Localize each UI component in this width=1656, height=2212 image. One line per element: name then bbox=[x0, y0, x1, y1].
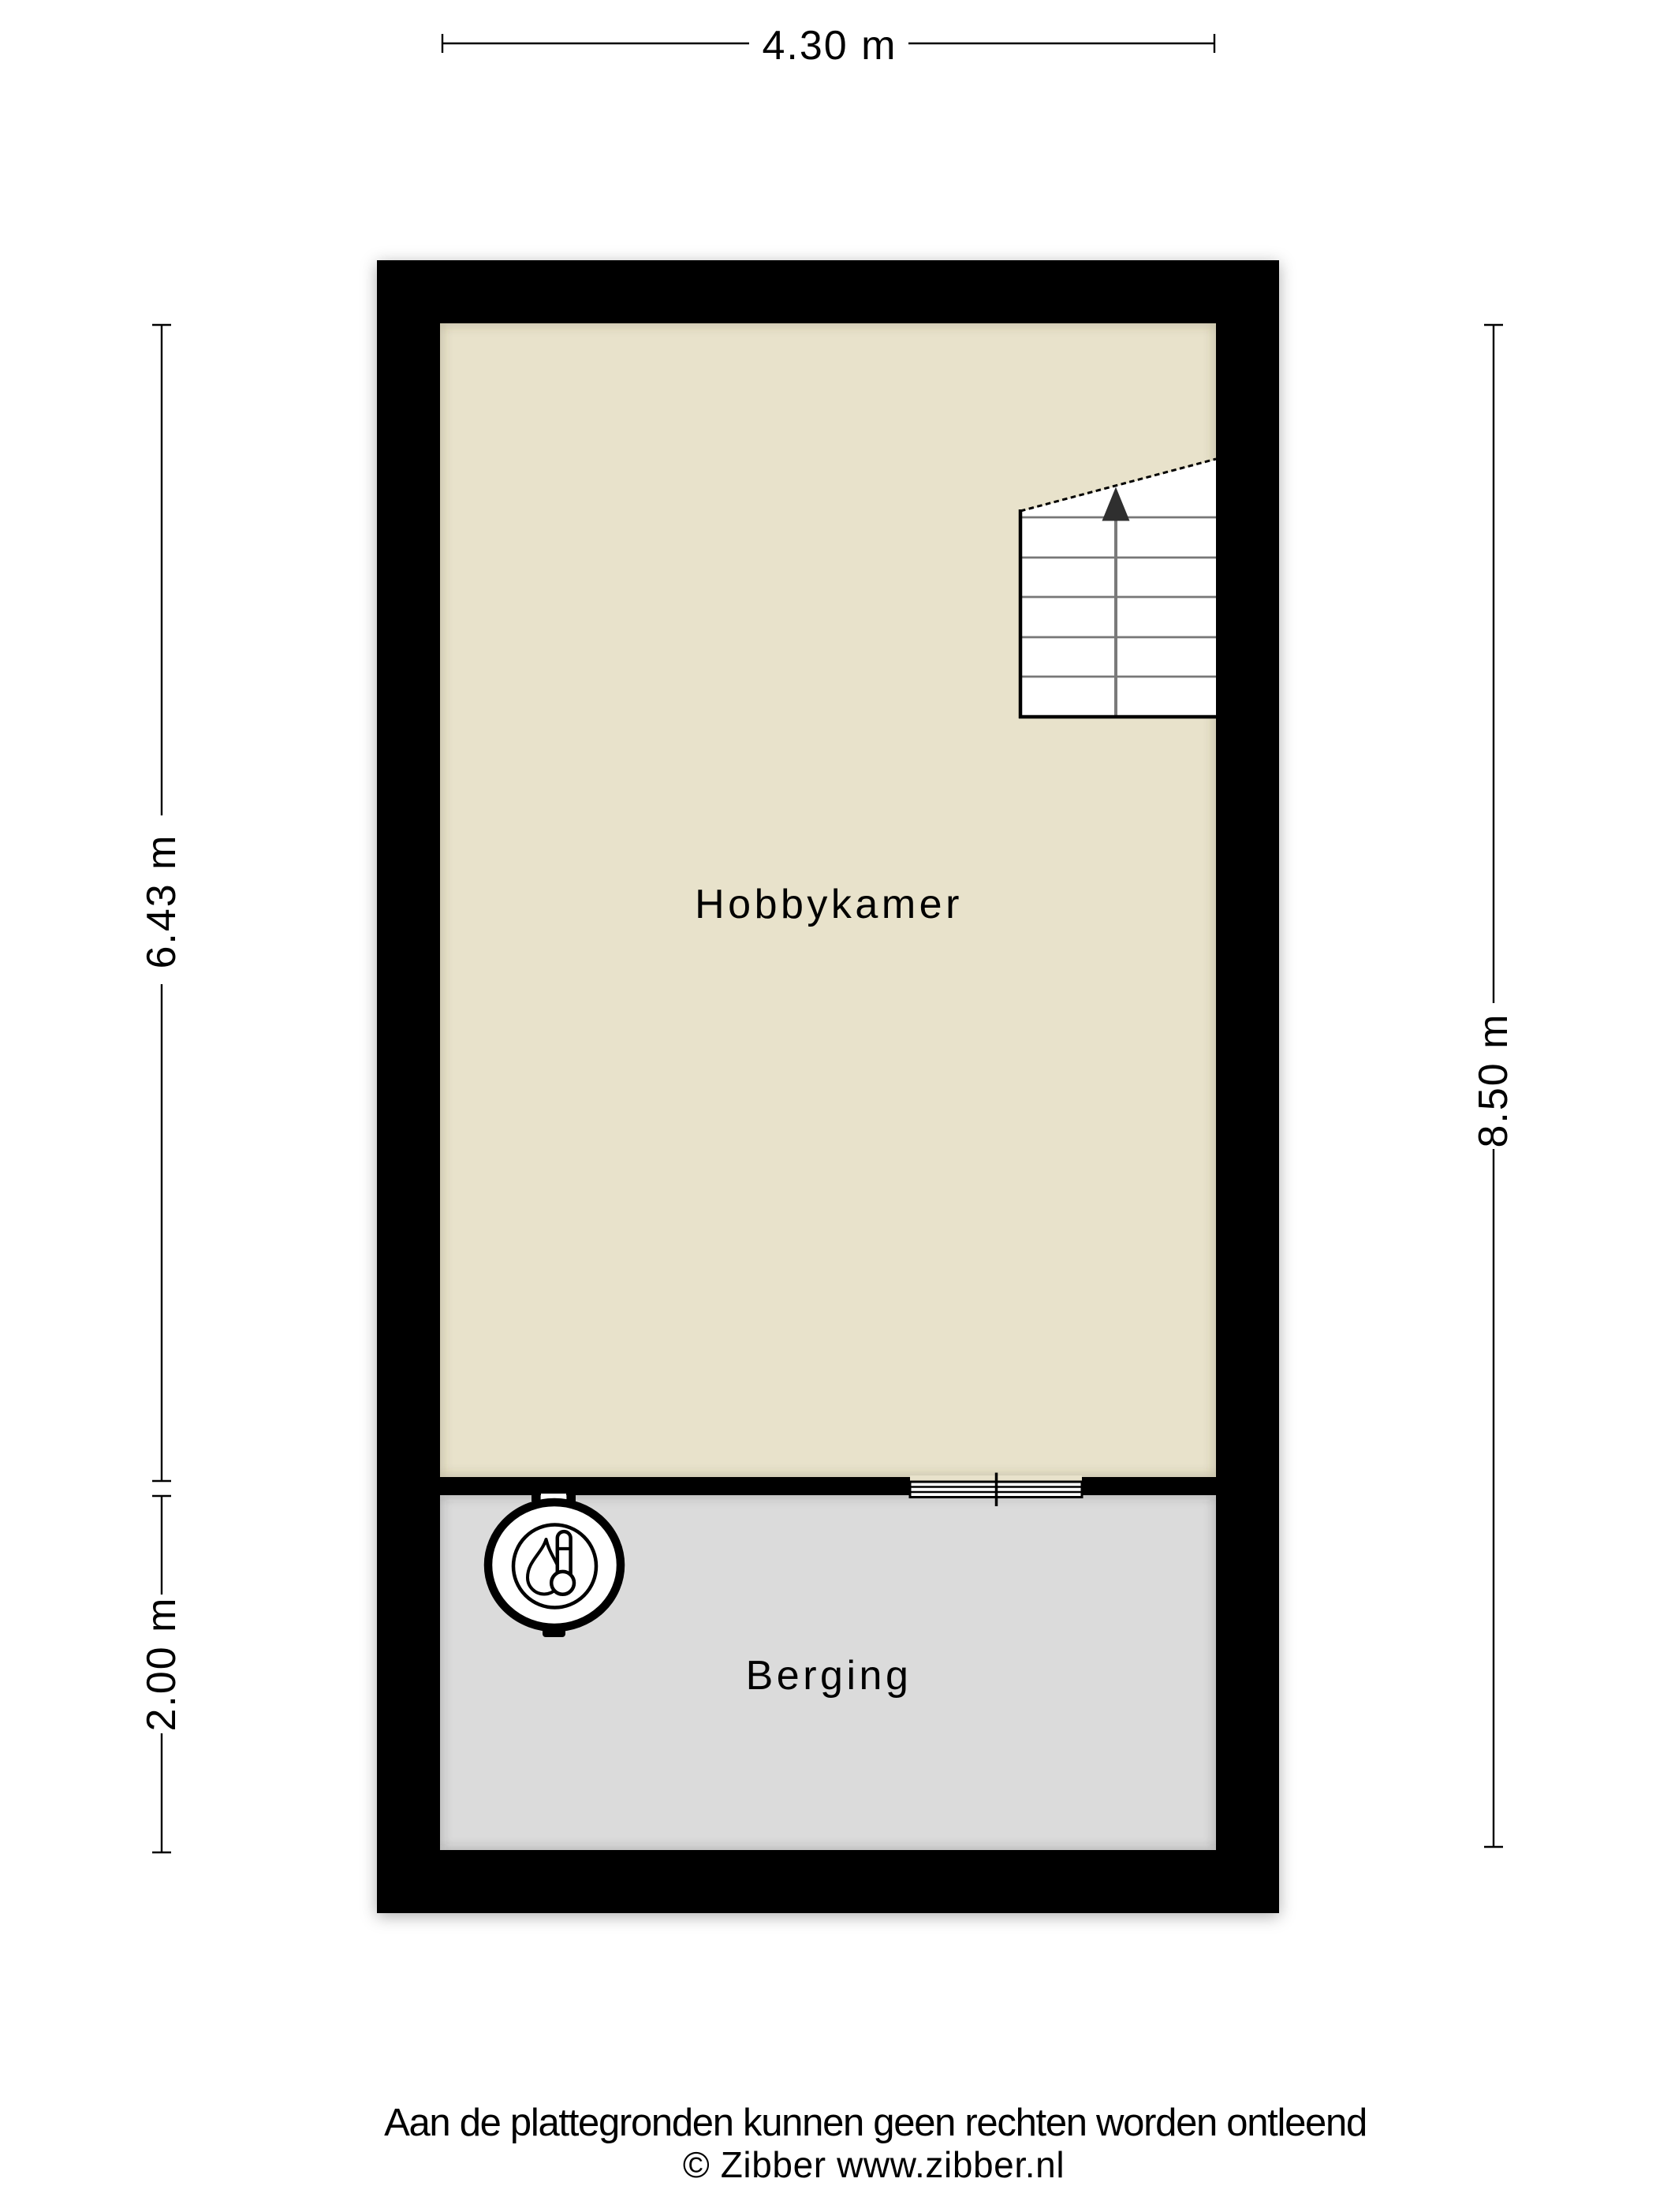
svg-text:Hobbykamer: Hobbykamer bbox=[695, 882, 963, 927]
svg-text:6.43 m: 6.43 m bbox=[139, 834, 185, 969]
svg-text:2.00 m: 2.00 m bbox=[139, 1597, 185, 1732]
svg-text:© Zibber www.zibber.nl: © Zibber www.zibber.nl bbox=[683, 2144, 1065, 2185]
svg-text:Aan de plattegronden kunnen ge: Aan de plattegronden kunnen geen rechten… bbox=[384, 2102, 1367, 2144]
svg-text:Berging: Berging bbox=[746, 1653, 912, 1699]
svg-text:8.50 m: 8.50 m bbox=[1471, 1013, 1516, 1148]
svg-text:4.30 m: 4.30 m bbox=[763, 23, 897, 69]
